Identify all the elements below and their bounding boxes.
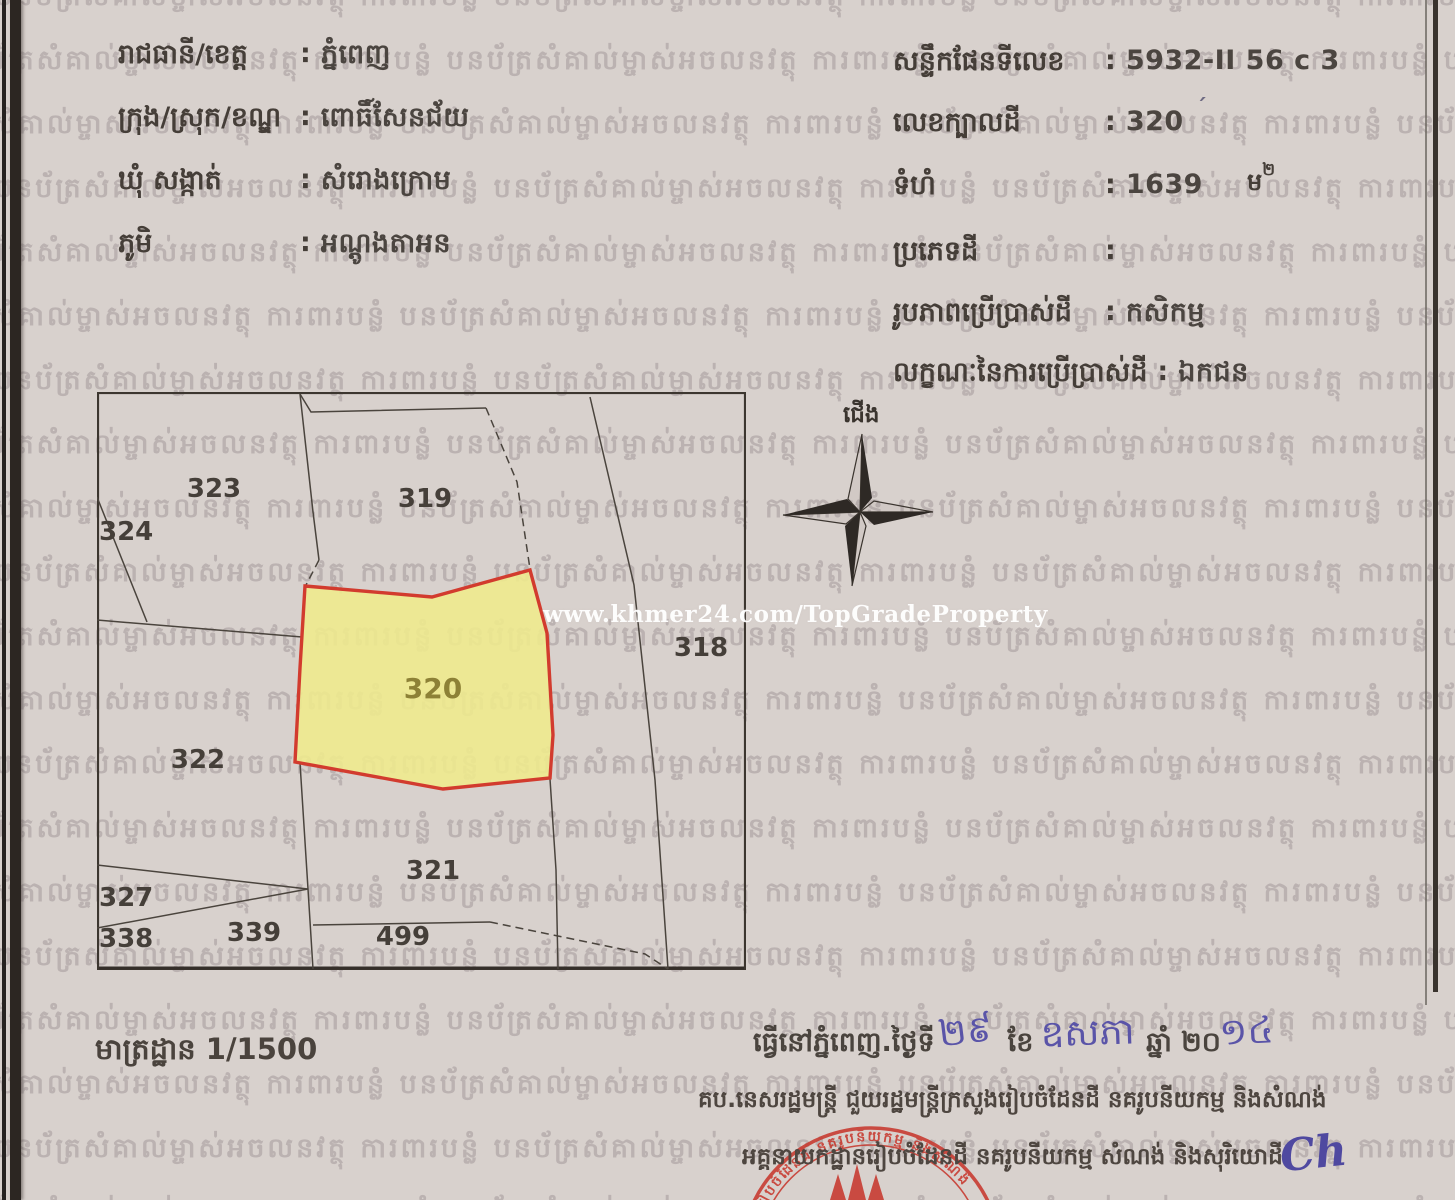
field-colon: : <box>300 101 311 140</box>
month-label: ខែ <box>1008 1027 1034 1058</box>
field-value: ភ្នំពេញ <box>321 38 391 77</box>
field-village: ភូមិ : អណ្ដូងតាអន <box>118 227 451 266</box>
field-value: សំរោងក្រោម <box>321 164 452 203</box>
compass-n-light <box>848 434 862 512</box>
parcel-label-499: 499 <box>376 922 430 952</box>
map-scale-label: មាត្រដ្ឋាន 1/1500 <box>95 1032 317 1074</box>
ministry-line-1: គប.នេសរដ្ឋមន្ត្រី ជួយរដ្ឋមន្ត្រីក្រសួងរៀ… <box>698 1086 1326 1119</box>
boundary-324 <box>97 497 147 622</box>
field-colon: : <box>1105 169 1116 208</box>
boundary-323-322 <box>97 620 302 637</box>
compass-n-dark <box>860 434 872 512</box>
field-label: ទំហំ <box>893 169 1095 208</box>
field-label: រូបភាពប្រើប្រាស់ដី <box>893 296 1095 335</box>
boundary-323-319 <box>300 394 319 560</box>
parcel-label-320: 320 <box>404 672 462 705</box>
field-label: ក្រុង/ស្រុក/ខណ្ឌ <box>118 101 290 140</box>
compass-rose-icon: ជើង <box>775 398 945 593</box>
signature-flourish: Ch <box>1278 1125 1350 1183</box>
scanned-land-title-document: បនប័ត្រសំគាល់ម្ចាស់អចលនវត្ថុ ការពារបន្លំ… <box>0 0 1455 1200</box>
field-colon: : <box>1105 296 1116 335</box>
boundary-319-top-notch <box>300 394 486 412</box>
field-use-character: លក្ខណៈនៃការប្រើប្រាស់ដី : ឯកជន <box>893 356 1249 395</box>
field-colon: : <box>1105 45 1116 84</box>
site-watermark: www.khmer24.com/TopGradeProperty <box>543 601 1048 628</box>
field-land-type: ប្រភេទដី : <box>893 235 1126 274</box>
field-colon: : <box>300 227 311 266</box>
field-value: ឯកជន <box>1178 356 1249 395</box>
year-printed: ២០ <box>1181 1027 1221 1058</box>
field-province: រាជធានី/ខេត្ត : ភ្នំពេញ <box>118 38 391 77</box>
parcel-label-327: 327 <box>99 883 153 913</box>
field-value: 5932-II 56 c 3 <box>1126 45 1340 84</box>
handwritten-day: ២៩ <box>936 1005 996 1065</box>
ministry-line-2: អគ្គនាយកដ្ឋានរៀបចំដែនដី នគរូបនីយកម្ម សំណ… <box>742 1143 1283 1176</box>
compass-north-label: ជើង <box>843 399 880 428</box>
boundary-322-321 <box>300 763 313 969</box>
field-colon: : <box>1105 106 1116 145</box>
field-parcel-number: លេខក្បាលដី : 320 ˊ <box>893 106 1207 145</box>
boundary-499-dashed <box>490 922 668 969</box>
boundary-319-right <box>486 408 530 569</box>
field-land-use: រូបភាពប្រើប្រាស់ដី : កសិកម្ម <box>893 296 1205 335</box>
parcel-label-324: 324 <box>99 517 153 547</box>
security-pattern-row: បនប័ត្រសំគាល់ម្ចាស់អចលនវត្ថុ ការពារបន្លំ… <box>0 300 1455 339</box>
field-colon: : <box>300 38 311 77</box>
field-label: លេខក្បាលដី <box>893 106 1095 145</box>
year-label: ឆ្នាំ <box>1146 1027 1172 1058</box>
parcel-label-321: 321 <box>406 856 460 886</box>
boundary-321-right <box>550 779 558 969</box>
security-pattern-row: បនប័ត្រសំគាល់ម្ចាស់អចលនវត្ថុ ការពារបន្លំ… <box>0 0 1455 19</box>
parcel-label-339: 339 <box>227 918 281 948</box>
boundary-318-left <box>590 397 668 969</box>
date-line: ធ្វើនៅភ្នំពេញ.ថ្ងៃទី ២៩ ខែ ឧសភា ឆ្នាំ ២០… <box>753 1016 1284 1070</box>
parcel-label-323: 323 <box>187 474 241 504</box>
cadastral-map: 323 324 319 318 320 322 321 327 338 339 … <box>97 392 746 970</box>
handwritten-year: ១៤ <box>1218 1007 1275 1064</box>
field-colon: : <box>1105 235 1116 274</box>
field-label: រាជធានី/ខេត្ត <box>118 38 290 77</box>
compass-e-dark <box>860 512 933 525</box>
compass-e-light <box>860 501 933 512</box>
field-colon: : <box>300 164 311 203</box>
field-value: អណ្ដូងតាអន <box>321 227 451 266</box>
right-frame-line-thick <box>1433 0 1438 992</box>
field-value: កសិកម្ម <box>1126 296 1205 335</box>
field-value: 1639 <box>1126 169 1203 208</box>
parcel-label-338: 338 <box>99 924 153 954</box>
field-label: ភូមិ <box>118 227 290 266</box>
field-label: លក្ខណៈនៃការប្រើប្រាស់ដី <box>893 356 1147 395</box>
field-commune: ឃុំ សង្កាត់ : សំរោងក្រោម <box>118 164 451 203</box>
field-colon: : <box>1157 356 1168 395</box>
field-map-sheet-number: សន្ទឹកផែនទីលេខ : 5932-II 56 c 3 <box>893 45 1340 84</box>
handwritten-month: ឧសភា <box>1040 1008 1136 1065</box>
field-value: 320 <box>1126 106 1184 145</box>
field-district: ក្រុង/ស្រុក/ខណ្ឌ : ពោធិ៍សែនជ័យ <box>118 101 470 140</box>
field-label: ប្រភេទដី <box>893 235 1095 274</box>
left-page-edge-bar <box>10 0 21 1200</box>
parcel-label-319: 319 <box>398 484 452 514</box>
parcel-label-318: 318 <box>674 633 728 663</box>
parcel-label-322: 322 <box>171 745 225 775</box>
pencil-tick: ˊ <box>1196 96 1207 135</box>
left-page-edge-line <box>2 0 6 1200</box>
area-unit-sup: ២ <box>1262 160 1275 180</box>
boundary-dashed-to-320 <box>306 560 319 585</box>
right-frame-line-thin <box>1425 0 1427 1005</box>
field-label: ឃុំ សង្កាត់ <box>118 164 290 203</box>
area-unit: ម២ <box>1247 165 1275 204</box>
date-prefix: ធ្វើនៅភ្នំពេញ.ថ្ងៃទី <box>753 1027 935 1058</box>
field-value: ពោធិ៍សែនជ័យ <box>321 101 470 140</box>
field-label: សន្ទឹកផែនទីលេខ <box>893 45 1095 84</box>
field-area-size: ទំហំ : 1639 ម២ <box>893 169 1275 208</box>
